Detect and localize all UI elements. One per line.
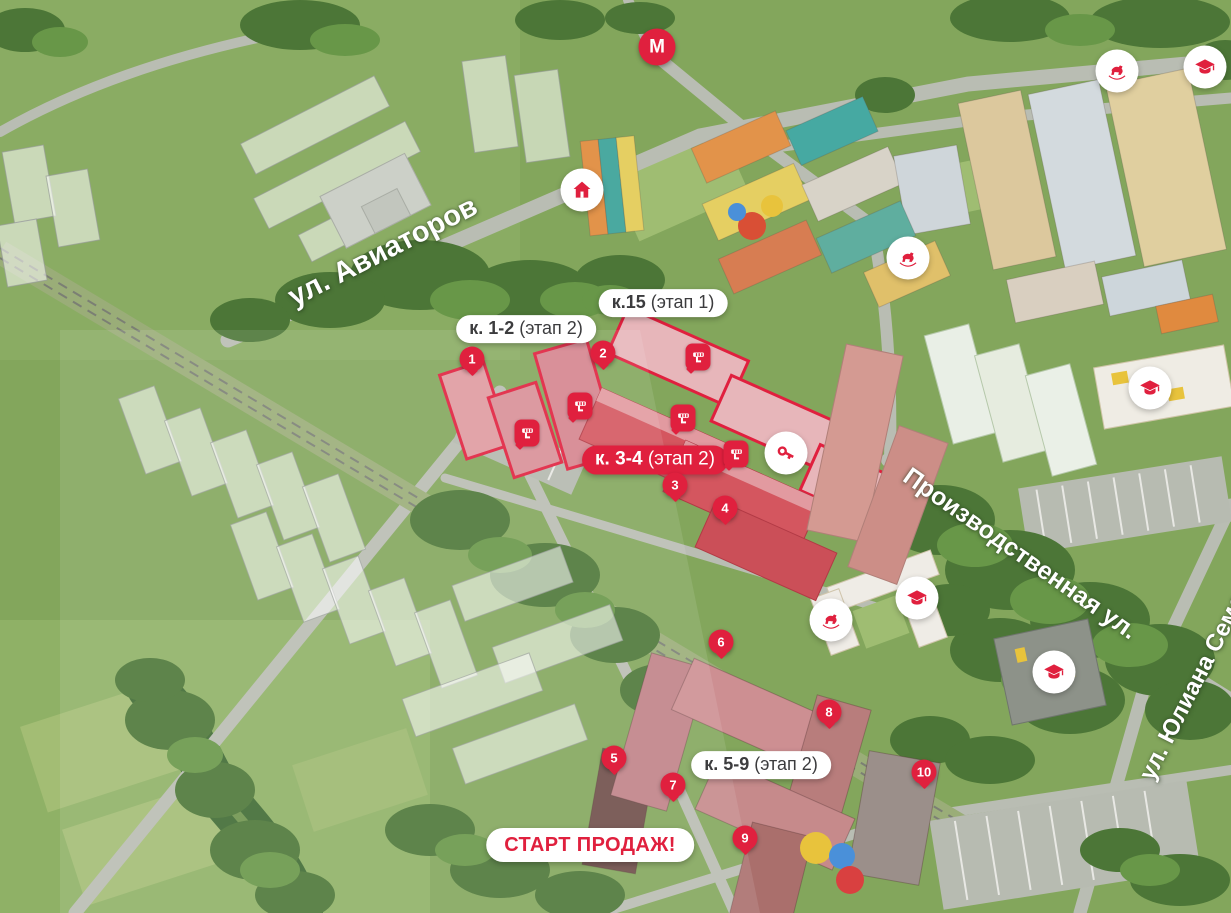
street-label-aviatorov: ул. Авиаторов <box>283 190 483 314</box>
label-k5-9[interactable]: к. 5-9 (этап 2) <box>691 751 831 779</box>
badge-tail <box>568 413 578 423</box>
label-k3-4-bold: к. 3-4 <box>595 449 643 470</box>
key-icon <box>770 437 801 468</box>
paint-roller-icon <box>519 425 535 441</box>
construction-badge <box>671 405 696 432</box>
label-k15-stage: (этап 1) <box>646 292 715 312</box>
home-icon <box>571 179 594 202</box>
paint-roller-icon <box>572 398 588 414</box>
marker-tail <box>608 764 619 775</box>
label-k1-2-stage: (этап 2) <box>514 318 583 338</box>
marker-tail <box>667 791 678 802</box>
sales-start-banner[interactable]: СТАРТ ПРОДАЖ! <box>486 828 694 862</box>
marker-tail <box>466 365 477 376</box>
amenity-rocking-horse[interactable] <box>887 237 930 280</box>
amenity-graduation-cap[interactable] <box>896 577 939 620</box>
amenity-rocking-horse[interactable] <box>810 599 853 642</box>
marker-tail <box>719 514 730 525</box>
label-k1-2[interactable]: к. 1-2 (этап 2) <box>456 315 596 343</box>
building-marker-3[interactable]: 3 <box>663 473 688 498</box>
graduation-cap-icon <box>906 587 929 610</box>
marker-tail <box>918 778 929 789</box>
rocking-horse-icon <box>820 609 843 632</box>
label-k3-4-stage: (этап 2) <box>643 449 715 470</box>
graduation-cap-icon <box>1139 377 1162 400</box>
metro-station-icon[interactable]: М <box>639 29 676 66</box>
construction-badge <box>568 393 593 420</box>
rocking-horse-icon <box>1106 60 1129 83</box>
building-marker-1[interactable]: 1 <box>460 347 485 372</box>
amenity-graduation-cap[interactable] <box>1033 651 1076 694</box>
building-marker-10[interactable]: 10 <box>912 760 937 785</box>
marker-tail <box>669 491 680 502</box>
amenity-key[interactable] <box>765 432 808 475</box>
marker-tail <box>739 844 750 855</box>
construction-badge <box>515 420 540 447</box>
construction-badge <box>724 441 749 468</box>
marker-tail <box>715 648 726 659</box>
street-label-proizvodstvennaya: Производственная ул. <box>897 462 1142 646</box>
building-marker-5[interactable]: 5 <box>602 746 627 771</box>
graduation-cap-icon <box>1194 56 1217 79</box>
rocking-horse-icon <box>897 247 920 270</box>
label-k3-4[interactable]: к. 3-4 (этап 2) <box>582 446 728 475</box>
label-k1-2-bold: к. 1-2 <box>469 318 514 338</box>
label-k15-bold: к.15 <box>612 292 646 312</box>
badge-tail <box>671 425 681 435</box>
label-k15[interactable]: к.15 (этап 1) <box>599 289 728 317</box>
label-k5-9-stage: (этап 2) <box>749 754 818 774</box>
building-marker-8[interactable]: 8 <box>817 700 842 725</box>
amenity-graduation-cap[interactable] <box>1184 46 1227 89</box>
amenity-rocking-horse[interactable] <box>1096 50 1139 93</box>
paint-roller-icon <box>690 349 706 365</box>
marker-tail <box>823 718 834 729</box>
building-marker-6[interactable]: 6 <box>709 630 734 655</box>
building-marker-9[interactable]: 9 <box>733 826 758 851</box>
badge-tail <box>724 461 734 471</box>
amenity-graduation-cap[interactable] <box>1129 367 1172 410</box>
masterplan-map: ул. АвиаторовПроизводственная ул.ул. Юли… <box>0 0 1231 913</box>
street-label-yuliana-semenova: ул. Юлиана Семенова <box>1134 539 1231 785</box>
badge-tail <box>686 364 696 374</box>
paint-roller-icon <box>728 446 744 462</box>
graduation-cap-icon <box>1043 661 1066 684</box>
label-k5-9-bold: к. 5-9 <box>704 754 749 774</box>
badge-tail <box>515 440 525 450</box>
paint-roller-icon <box>675 410 691 426</box>
building-marker-7[interactable]: 7 <box>661 773 686 798</box>
construction-badge <box>686 344 711 371</box>
building-marker-2[interactable]: 2 <box>591 341 616 366</box>
amenity-home[interactable] <box>561 169 604 212</box>
overlay-layer: ул. АвиаторовПроизводственная ул.ул. Юли… <box>0 0 1231 913</box>
building-marker-4[interactable]: 4 <box>713 496 738 521</box>
marker-tail <box>597 359 608 370</box>
